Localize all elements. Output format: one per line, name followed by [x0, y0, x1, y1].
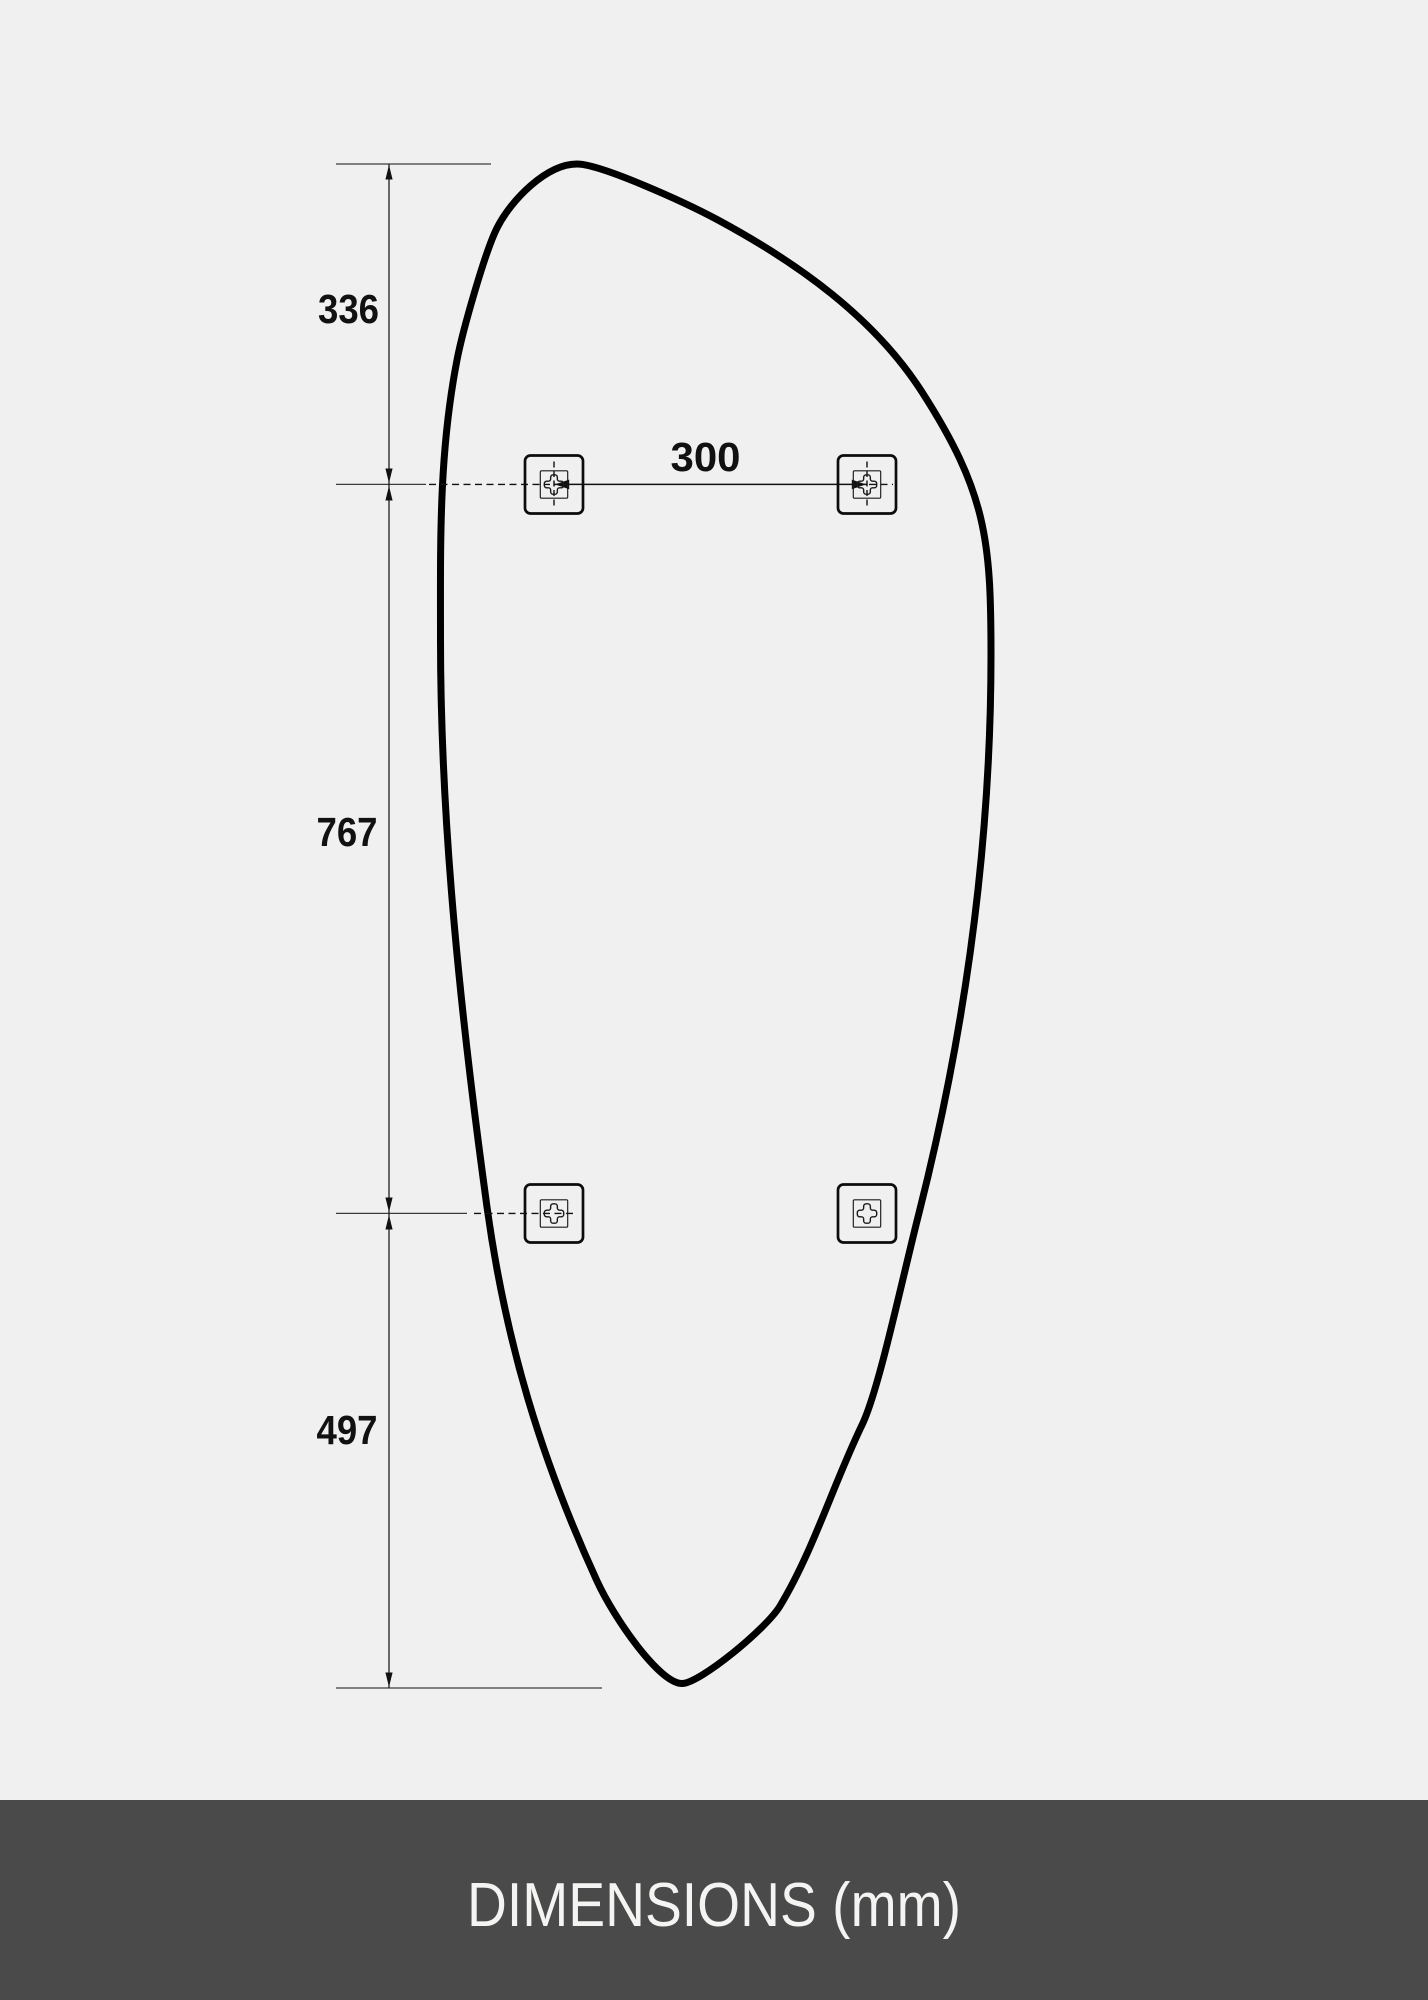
svg-text:DIMENSIONS (mm): DIMENSIONS (mm): [467, 1871, 961, 1940]
svg-text:336: 336: [318, 286, 379, 332]
svg-text:497: 497: [317, 1407, 378, 1453]
svg-text:300: 300: [671, 434, 741, 480]
svg-text:767: 767: [317, 809, 378, 855]
